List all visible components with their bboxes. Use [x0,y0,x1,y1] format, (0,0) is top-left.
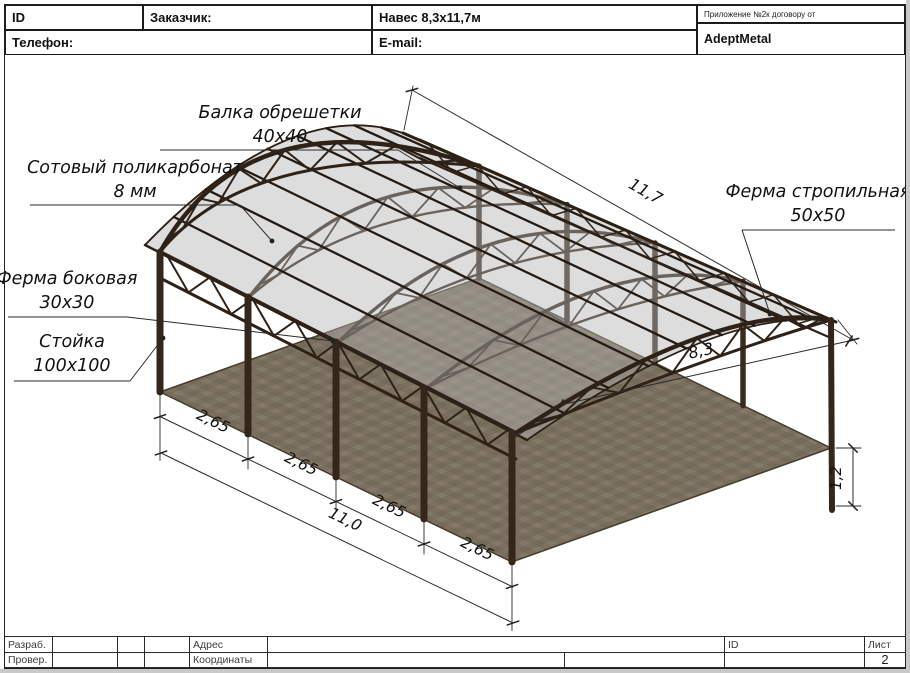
header-company-cell: AdeptMetal [697,23,905,55]
coordinates-label: Координаты [193,654,252,666]
callout-leader-dot [331,339,336,344]
header-email-cell: E-mail: [372,30,697,55]
callout-text: 40x40 [253,127,308,147]
address-value-cell [268,637,725,653]
header-appendix-cell: Приложение №2к договору от [697,5,905,23]
coordinates-cell: Координаты [190,652,268,668]
appendix-note: Приложение №2к договору от [704,10,815,19]
footer-empty-cell [118,652,145,668]
footer-empty-cell [53,652,118,668]
callout-text: Сотовый поликарбонат [27,158,244,178]
customer-label: Заказчик: [150,10,212,25]
coordinates-value-cell [268,652,565,668]
company-name: AdeptMetal [704,32,771,46]
callout-text: 30x30 [40,293,95,313]
page-edge-right [906,0,910,673]
address-cell: Адрес [190,637,268,653]
sheet-number: 2 [881,652,888,667]
page-edge-bottom [0,669,910,673]
canopy-technical-drawing: 2,652,652,652,6511,011,78,31,2Балка обре… [0,0,910,673]
extension-line [404,86,413,130]
footer-id-label: ID [728,639,739,651]
header-title-cell: Навес 8,3x11,7м [372,5,697,30]
sheet-number-cell: 2 [865,652,905,668]
developed-label: Разраб. [8,639,46,651]
header-id-label: ID [12,10,25,25]
callout-text: Ферма стропильная [725,182,910,202]
callout-text: 8 мм [113,182,156,202]
callout-text: Стойка [39,332,105,352]
phone-label: Телефон: [12,35,73,50]
dimension-embed-depth: 1,2 [827,466,845,490]
footer-empty-cell [53,637,118,653]
footer-empty-cell [118,637,145,653]
callout-leader-dot [161,336,166,341]
footer-row-1: Разраб. Адрес ID Лист [4,636,906,653]
callout-4: Стойка100x100 [14,332,165,381]
callout-text: 50x50 [791,206,846,226]
dimension-roof-length: 11,7 [626,174,667,208]
doc-title: Навес 8,3x11,7м [379,10,481,25]
dimension-total-length: 11,0 [326,504,365,535]
developed-cell: Разраб. [5,637,53,653]
header-customer-cell: Заказчик: [143,5,372,30]
callout-text: 100x100 [33,356,110,376]
callout-text: Балка обрешетки [198,103,361,123]
callout-leader-dot [458,186,463,191]
sheet-label-cell: Лист [865,637,905,653]
header-id-cell: ID [5,5,143,30]
header-phone-cell: Телефон: [5,30,372,55]
address-label: Адрес [193,639,223,651]
footer-empty-cell [565,652,725,668]
checked-label: Провер. [8,654,47,666]
callout-leader-dot [768,312,773,317]
callout-text: Ферма боковая [0,269,137,289]
callout-leader-dot [270,239,275,244]
footer-empty-cell [145,637,190,653]
sheet-label: Лист [868,639,891,651]
checked-cell: Провер. [5,652,53,668]
email-label: E-mail: [379,35,422,50]
footer-id-cell: ID [725,637,865,653]
footer-empty-cell [145,652,190,668]
footer-row-2: Провер. Координаты 2 [4,652,906,668]
footer-empty-cell [725,652,865,668]
